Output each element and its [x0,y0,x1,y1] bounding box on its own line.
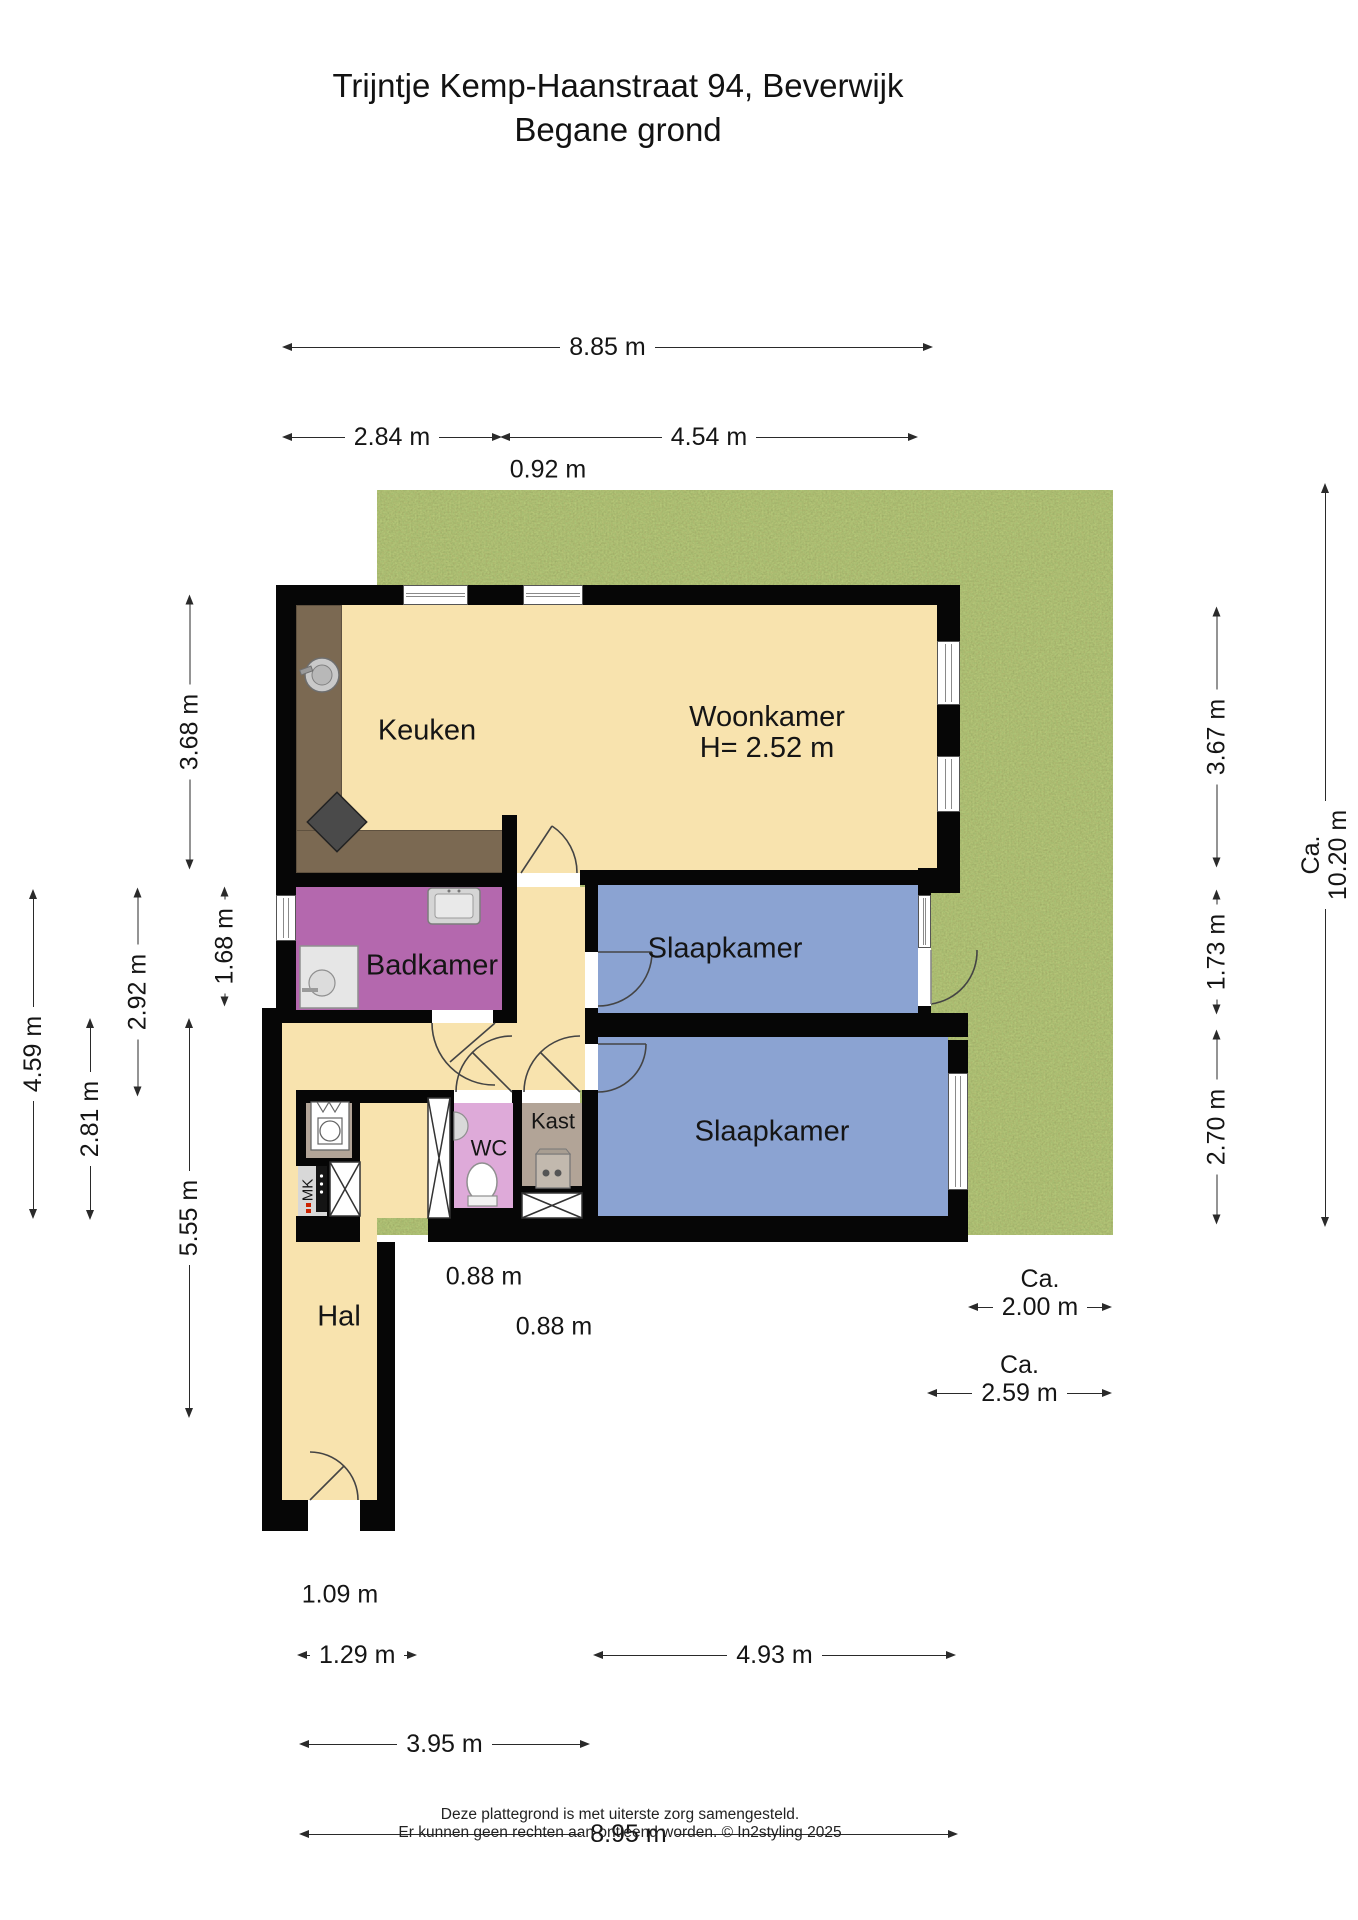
window-woonkamer-1 [937,641,960,705]
dim-395-label: 3.95 m [397,1730,491,1758]
dim-1020-value: 10.20 m [1325,810,1352,900]
dim-885: 8.85 m [282,333,933,361]
dim-459: 4.59 m [19,889,47,1219]
dim-555-label: 5.55 m [175,1171,203,1265]
dim-200-ca: Ca. [1021,1265,1060,1293]
wall-washer-left [296,1090,306,1166]
dim-1020-label: Ca. 10.20 m [1298,801,1352,909]
label-woonkamer-name: Woonkamer [689,702,845,733]
footer-disclaimer: Deze plattegrond is met uiterste zorg sa… [270,1806,970,1842]
dim-493-label: 4.93 m [727,1641,821,1669]
dim-270-label: 2.70 m [1203,1080,1231,1174]
dim-395: 3.95 m [299,1730,590,1758]
dim-200-value: 2.00 m [1002,1293,1078,1321]
window-keuken-1 [403,585,468,605]
wall-slaapkamer1-left-upper [585,885,598,952]
dim-259: Ca. 2.59 m [927,1379,1112,1407]
washer-closet-floor [306,1100,352,1158]
dim-1020-ca: Ca. [1298,810,1325,900]
dim-173: 1.73 m [1203,890,1231,1015]
wall-mk-right [327,1166,332,1216]
dim-493: 4.93 m [593,1641,956,1669]
dim-092-label: 0.92 m [510,456,586,485]
wall-badkamer-right [502,887,517,1023]
dim-555: 5.55 m [175,1018,203,1418]
dim-367: 3.67 m [1203,607,1231,868]
dim-088b-label: 0.88 m [516,1313,592,1342]
label-woonkamer: Woonkamer H= 2.52 m [689,702,845,764]
dim-270: 2.70 m [1203,1030,1231,1225]
label-slaapkamer2: Slaapkamer [695,1117,850,1148]
dim-459-label: 4.59 m [19,1007,47,1101]
hal-passage-floor [360,1090,428,1218]
title-floor: Begane grond [268,108,968,152]
dim-129-label: 1.29 m [310,1641,404,1669]
wall-slaapkamer2-left-stub [585,1037,598,1044]
title-address: Trijntje Kemp-Haanstraat 94, Beverwijk [268,64,968,108]
wall-woonkamer-bottom [580,870,960,885]
corridor-floor-sliver [517,1010,585,1023]
door-gap-badkamer [432,1010,493,1023]
window-woonkamer-2 [937,756,960,812]
dim-367-label: 3.67 m [1203,690,1231,784]
wall-wc-bottom [444,1208,522,1218]
label-kast: Kast [531,1106,575,1137]
label-woonkamer-height: H= 2.52 m [689,733,845,764]
wall-keuken-stub [502,815,517,873]
wall-washer-bottom [296,1158,360,1166]
dim-368-label: 3.68 m [176,685,204,779]
dim-259-label: Ca. 2.59 m [972,1379,1066,1407]
dim-259-ca: Ca. [1000,1351,1039,1379]
dim-259-value: 2.59 m [981,1379,1057,1407]
dim-281-label: 2.81 m [76,1072,104,1166]
wall-left-upper [276,585,296,1023]
door-gap-slaapkamer1 [585,952,598,1008]
label-mk: MK [293,1179,324,1202]
dim-129: 1.29 m [297,1641,392,1669]
footer-line1: Deze plattegrond is met uiterste zorg sa… [270,1806,970,1824]
dim-200: Ca. 2.00 m [968,1293,1112,1321]
window-slaapkamer1 [918,895,931,948]
page-title: Trijntje Kemp-Haanstraat 94, Beverwijk B… [268,64,968,152]
wall-kast-bottom [513,1186,582,1193]
wall-badkamer-bottom-right [493,1010,517,1023]
wall-washer-right [352,1090,360,1166]
wall-closets-top-a [296,1090,454,1103]
dim-168-label: 1.68 m [211,899,239,993]
dim-088a-label: 0.88 m [446,1263,522,1292]
door-gap-wc [454,1090,512,1103]
wall-bottom-under-mk [296,1216,360,1242]
wall-right-woonkamer [937,585,960,885]
wall-hal-right [377,1242,395,1500]
label-badkamer: Badkamer [366,951,498,982]
wall-hal-bottom-left [262,1500,308,1531]
wall-wc-kast-divider [513,1090,522,1218]
dim-281: 2.81 m [76,1018,104,1220]
dim-1020: Ca. 10.20 m [1311,483,1339,1227]
door-gap-kast [522,1090,580,1103]
wall-between-bedrooms [585,1013,968,1037]
dim-292: 2.92 m [124,888,152,1097]
dim-368: 3.68 m [176,595,204,870]
dim-454-label: 4.54 m [662,423,756,451]
label-wc: WC [471,1133,508,1164]
door-gap-slaapkamer2 [585,1044,598,1090]
window-keuken-2 [523,585,583,605]
floorplan-page: Trijntje Kemp-Haanstraat 94, Beverwijk B… [0,0,1358,1920]
footer-line2: Er kunnen geen rechten aan ontleend word… [270,1824,970,1842]
dim-885-label: 8.85 m [560,333,654,361]
dim-292-label: 2.92 m [124,945,152,1039]
door-gap-garden [918,948,931,1006]
wall-bottom-main [428,1216,968,1242]
dim-168: 1.68 m [211,888,239,1007]
dim-173-label: 1.73 m [1203,905,1231,999]
dim-284: 2.84 m [282,423,502,451]
door-gap-front [308,1500,360,1531]
label-slaapkamer1: Slaapkamer [648,934,803,965]
window-slaapkamer2 [948,1073,968,1190]
kitchen-counter-bottom [296,830,503,873]
wall-top [276,585,960,605]
dim-454: 4.54 m [500,423,918,451]
label-hal: Hal [317,1302,361,1333]
wall-left-lower [262,1008,282,1531]
wall-slaapkamer2-left-lower [582,1090,598,1218]
wall-wc-left [444,1090,454,1218]
window-badkamer-west [276,895,296,941]
dim-284-label: 2.84 m [345,423,439,451]
room-badkamer-floor [296,887,502,1010]
dim-109-label: 1.09 m [302,1581,378,1610]
wall-badkamer-bottom-left [262,1010,432,1023]
wall-hal-bottom-right [360,1500,395,1531]
corridor-floor-right-of-bathroom [517,887,585,1013]
wall-keuken-badkamer [296,873,517,887]
dim-200-label: Ca. 2.00 m [993,1293,1087,1321]
door-gap-woonkamer [517,873,580,887]
label-keuken: Keuken [378,716,476,747]
